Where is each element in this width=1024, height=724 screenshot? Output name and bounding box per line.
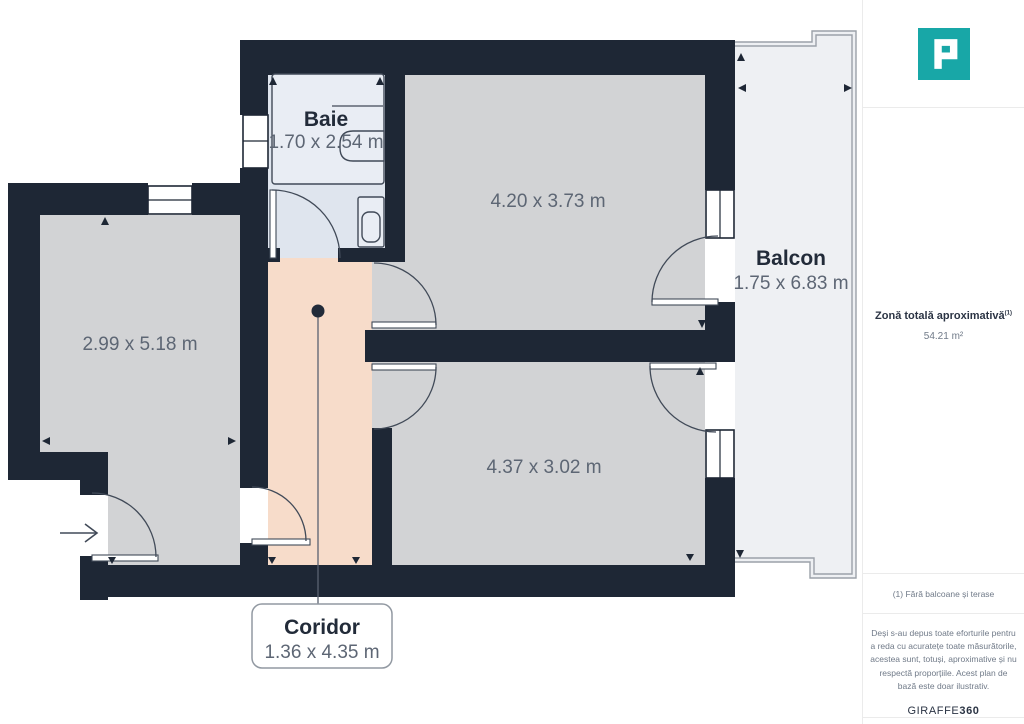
logo-block [863, 0, 1024, 108]
room-label-baie-name: Baie [304, 108, 348, 131]
giraffe360-wordmark: GIRAFFE360 [870, 705, 1017, 717]
room-label-left-dims: 2.99 x 5.18 m [82, 334, 197, 355]
total-area-value: 54.21 m² [863, 331, 1024, 342]
total-area-label: Zonă totală aproximativă(1) [863, 310, 1024, 322]
footnote: (1) Fără balcoane și terase [863, 573, 1024, 614]
room-label-bottom-dims: 4.37 x 3.02 m [486, 457, 601, 478]
floorplan-svg: Coridor 1.36 x 4.35 m Baie 1.70 x 2.54 m… [0, 0, 862, 724]
room-left-floor [40, 215, 240, 565]
disclaimer-text: Deși s-au depus toate eforturile pentru … [870, 627, 1017, 693]
room-label-top-dims: 4.20 x 3.73 m [490, 191, 605, 212]
corridor-floor [268, 258, 372, 565]
page: Coridor 1.36 x 4.35 m Baie 1.70 x 2.54 m… [0, 0, 1024, 724]
balcony [735, 31, 856, 578]
room-label-balcon-dims: 1.75 x 6.83 m [733, 273, 848, 294]
footnote-marker: (1) [1005, 310, 1012, 316]
info-sidebar: Zonă totală aproximativă(1) 54.21 m² (1)… [862, 0, 1024, 724]
floorplan-canvas: Coridor 1.36 x 4.35 m Baie 1.70 x 2.54 m… [0, 0, 862, 724]
room-label-coridor-name: Coridor [284, 616, 360, 639]
total-area-block: Zonă totală aproximativă(1) 54.21 m² [863, 310, 1024, 342]
giraffe360-logo-mark [918, 28, 970, 80]
entrance-arrow-icon [60, 524, 97, 542]
room-label-coridor-dims: 1.36 x 4.35 m [264, 642, 379, 663]
room-label-baie-dims: 1.70 x 2.54 m [268, 132, 383, 153]
toilet [358, 197, 384, 247]
disclaimer-block: Deși s-au depus toate eforturile pentru … [863, 613, 1024, 718]
room-label-balcon-name: Balcon [756, 247, 826, 270]
corridor-leader-dot [312, 305, 325, 318]
